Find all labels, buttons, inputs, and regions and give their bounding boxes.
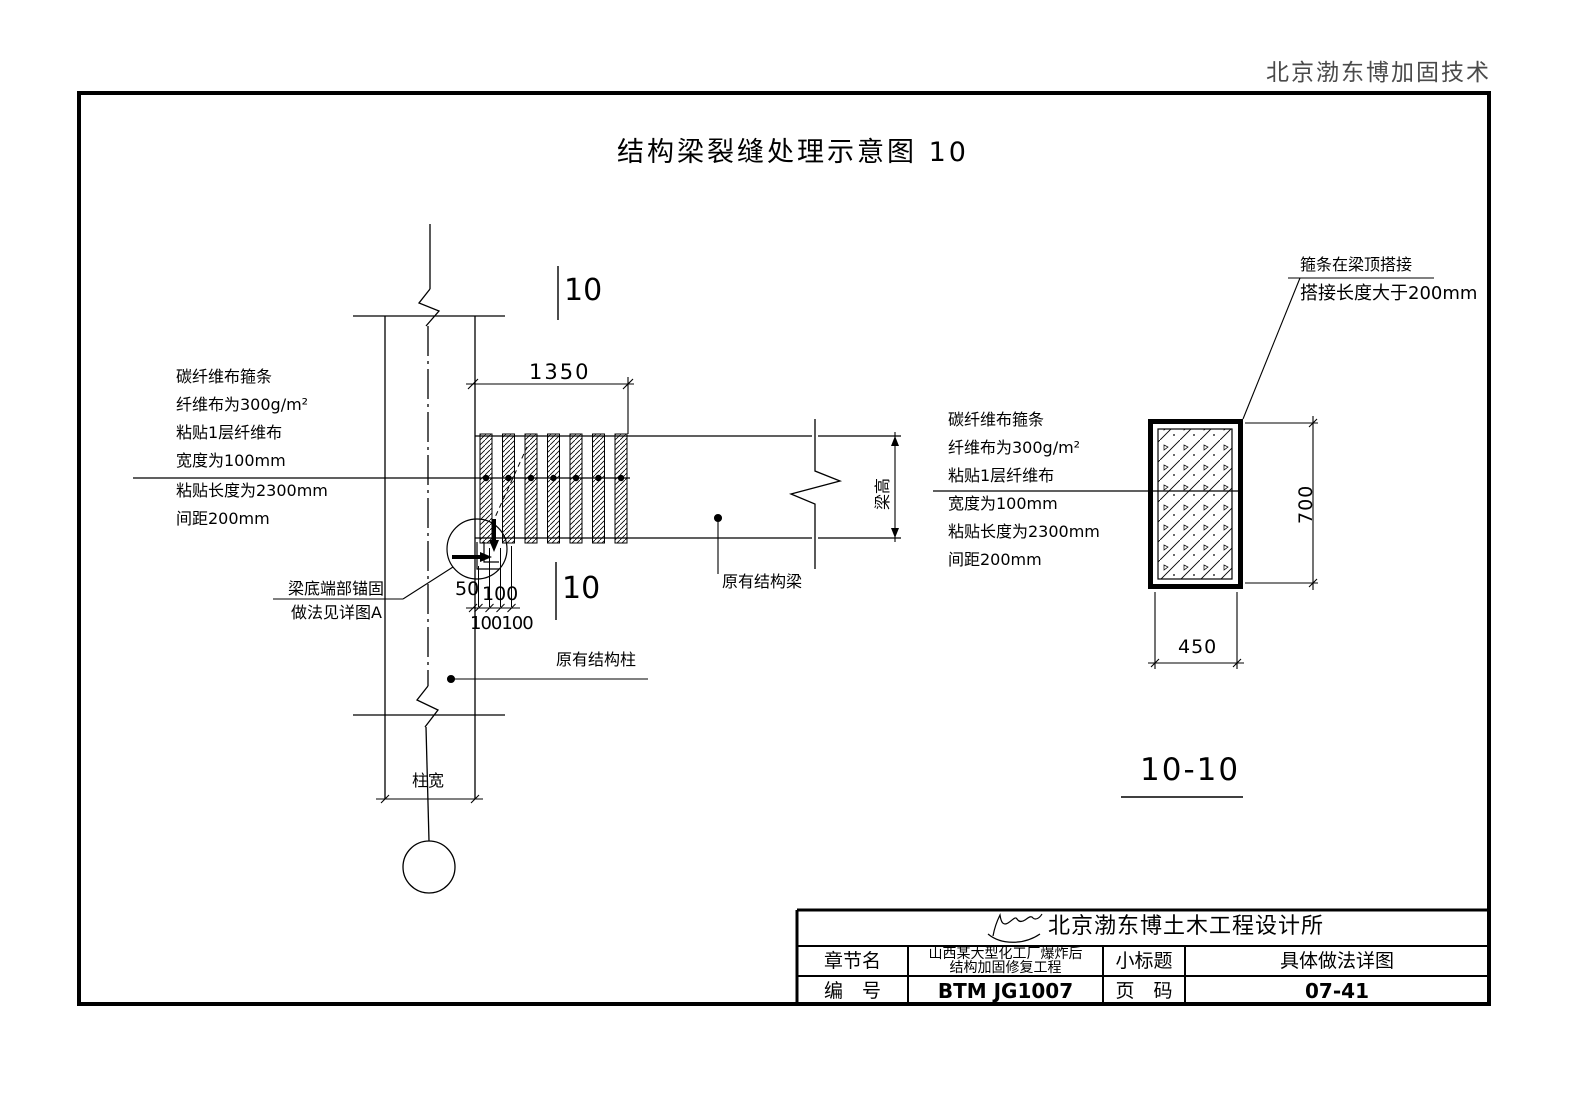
arrow-right: [480, 552, 492, 562]
page-label: 页 码: [1103, 981, 1185, 1003]
left-note-line: 粘贴1层纤维布: [176, 424, 282, 442]
right-note-line: 粘贴长度为2300mm: [948, 523, 1100, 541]
existing-column-label: 原有结构柱: [556, 651, 636, 669]
right-note-line: 碳纤维布箍条: [948, 411, 1044, 429]
left-note-line: 纤维布为300g/m²: [176, 396, 308, 414]
company-logo: [988, 914, 1042, 942]
anchor-note-line1: 梁底端部锚固: [288, 580, 384, 598]
beam-elevation: [475, 419, 901, 569]
dim-1350: [466, 377, 634, 434]
page-value: 07-41: [1185, 980, 1489, 1003]
break-zigzag-bottom: [417, 686, 438, 727]
column-width-label: 柱宽: [412, 772, 444, 790]
drawing-title: 结构梁裂缝处理示意图 10: [617, 137, 969, 168]
subtitle-label: 小标题: [1103, 951, 1185, 973]
beam-break-zigzag: [791, 419, 840, 569]
left-note-line: 粘贴长度为2300mm: [176, 482, 328, 500]
lap-note-line1: 箍条在梁顶搭接: [1300, 256, 1412, 274]
lap-note-leader: [1243, 278, 1300, 419]
dim-100100-text: 100100: [470, 614, 533, 635]
right-note-line: 间距200mm: [948, 551, 1042, 569]
beam-height-label: 梁高: [874, 478, 892, 510]
lap-note-line2: 搭接长度大于200mm: [1300, 284, 1477, 305]
number-label: 编 号: [797, 981, 908, 1003]
cfrp-strips: [480, 434, 627, 543]
dim-1350-text: 1350: [529, 360, 590, 384]
chapter-value-line2: 结构加固修复工程: [908, 961, 1103, 975]
chapter-value-line1: 山西某大型化工厂爆炸后: [908, 947, 1103, 961]
left-note-line: 宽度为100mm: [176, 452, 286, 470]
chapter-label: 章节名: [797, 951, 908, 973]
left-note-line: 间距200mm: [176, 510, 270, 528]
existing-beam-label: 原有结构梁: [722, 573, 802, 591]
right-note-line: 宽度为100mm: [948, 495, 1058, 513]
section-title: 10-10: [1140, 753, 1240, 789]
dim-700-text: 700: [1296, 485, 1318, 524]
concrete-core: [1158, 429, 1232, 579]
left-note-line: 碳纤维布箍条: [176, 368, 272, 386]
grid-bubble: [403, 841, 455, 893]
dim-450-text: 450: [1178, 637, 1217, 659]
dim-100-text: 100: [482, 584, 518, 606]
subtitle-value: 具体做法详图: [1185, 951, 1489, 973]
drawing-sheet: 北京渤东博加固技术 结构梁裂缝处理示意图 10 碳纤维布箍条 纤维布为300g/…: [0, 0, 1571, 1098]
section-marker-lower: 10: [562, 572, 600, 607]
section-marker-upper: 10: [564, 274, 602, 309]
number-value: BTM JG1007: [908, 980, 1103, 1003]
right-note-line: 粘贴1层纤维布: [948, 467, 1054, 485]
arrow-down: [489, 540, 499, 552]
dim-50-text: 50: [455, 579, 479, 601]
right-note-line: 纤维布为300g/m²: [948, 439, 1080, 457]
anchor-note-line2: 做法见详图A: [291, 604, 382, 622]
dim-column-width: [376, 795, 483, 803]
vendor-watermark: 北京渤东博加固技术: [1266, 60, 1491, 86]
break-zigzag-top: [419, 289, 439, 326]
company-name: 北京渤东博土木工程设计所: [1048, 914, 1324, 939]
sheet-border: [79, 93, 1489, 1004]
